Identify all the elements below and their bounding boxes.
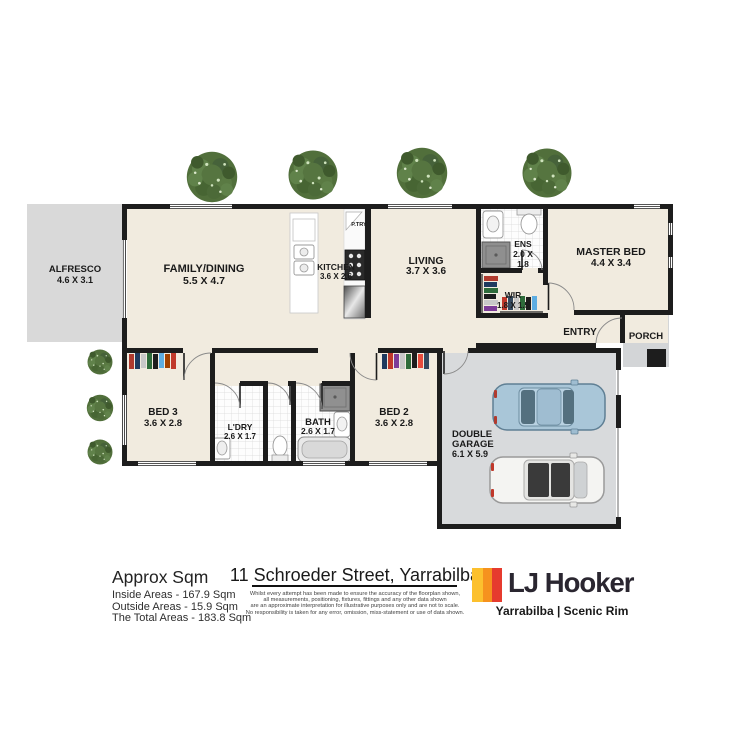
room-label-entry: ENTRY xyxy=(563,327,597,338)
floor-plan: ALFRESCO 4.6 X 3.1 FAMILY/DINING 5.5 X 4… xyxy=(0,0,750,560)
sliding-door xyxy=(122,240,127,318)
room-label-alfresco: ALFRESCO xyxy=(49,264,101,275)
porch-column xyxy=(647,349,666,367)
property-address: 11 Schroeder Street, Yarrabilba xyxy=(190,565,520,586)
car-blue-top-view xyxy=(493,380,605,434)
robe-bed3 xyxy=(127,352,181,369)
floorplan-page: ALFRESCO 4.6 X 3.1 FAMILY/DINING 5.5 X 4… xyxy=(0,0,750,750)
svg-text:3.6 X 2.8: 3.6 X 2.8 xyxy=(375,418,413,429)
svg-text:2.0 X: 2.0 X xyxy=(513,249,533,259)
brand-name: LJ Hooker xyxy=(508,567,633,599)
tree-icon xyxy=(397,148,447,198)
room-label-ens: ENS xyxy=(514,239,532,249)
svg-text:2.6 X 1.7: 2.6 X 1.7 xyxy=(224,432,257,441)
svg-text:3.6 X 2.6: 3.6 X 2.6 xyxy=(320,272,353,281)
room-label-porch: PORCH xyxy=(629,331,663,342)
brand-stripes-icon xyxy=(472,568,502,602)
toilet-icon xyxy=(273,436,287,456)
svg-text:3.7 X 3.6: 3.7 X 3.6 xyxy=(406,266,446,277)
total-areas: The Total Areas - 183.8 Sqm xyxy=(112,613,251,625)
room-label-laundry: L'DRY xyxy=(228,422,253,432)
laundry-fixtures xyxy=(214,438,230,459)
room-label-bed3: BED 3 xyxy=(148,407,178,418)
room-label-master: MASTER BED xyxy=(576,246,646,258)
brand-logo xyxy=(472,568,502,607)
bush-icon xyxy=(88,440,113,465)
svg-text:3.6 X 2.8: 3.6 X 2.8 xyxy=(144,418,182,429)
room-label-family: FAMILY/DINING xyxy=(164,263,245,275)
brand-office: Yarrabilba | Scenic Rim xyxy=(476,604,648,618)
tree-icon xyxy=(523,149,572,198)
svg-text:4.6 X 3.1: 4.6 X 3.1 xyxy=(57,275,93,285)
wc-fixtures xyxy=(272,436,288,462)
svg-text:2.6 X 1.7: 2.6 X 1.7 xyxy=(301,426,335,436)
address-underline xyxy=(252,585,457,588)
robe-bed2 xyxy=(380,352,436,369)
bush-icon xyxy=(88,350,113,375)
tree-icon xyxy=(187,152,237,202)
svg-text:1.8 X 1.5: 1.8 X 1.5 xyxy=(497,301,530,310)
room-label-wir: WIR xyxy=(505,290,522,300)
svg-text:1.8: 1.8 xyxy=(517,259,529,269)
svg-text:4.4 X 3.4: 4.4 X 3.4 xyxy=(591,258,631,269)
inside-areas: Inside Areas - 167.9 Sqm xyxy=(112,590,251,602)
fridge-icon xyxy=(344,286,365,318)
svg-text:5.5 X 4.7: 5.5 X 4.7 xyxy=(183,275,225,287)
car-white-top-view xyxy=(490,453,604,507)
room-label-bed2: BED 2 xyxy=(379,407,409,418)
disclaimer: Whilst every attempt has been made to en… xyxy=(235,591,475,617)
room-label-kitchen: KITCHEN xyxy=(317,262,355,272)
bush-icon xyxy=(87,395,113,421)
room-label-pantry: P.TRY xyxy=(351,222,367,228)
tree-icon xyxy=(289,151,338,200)
svg-text:6.1 X 5.9: 6.1 X 5.9 xyxy=(452,449,488,459)
